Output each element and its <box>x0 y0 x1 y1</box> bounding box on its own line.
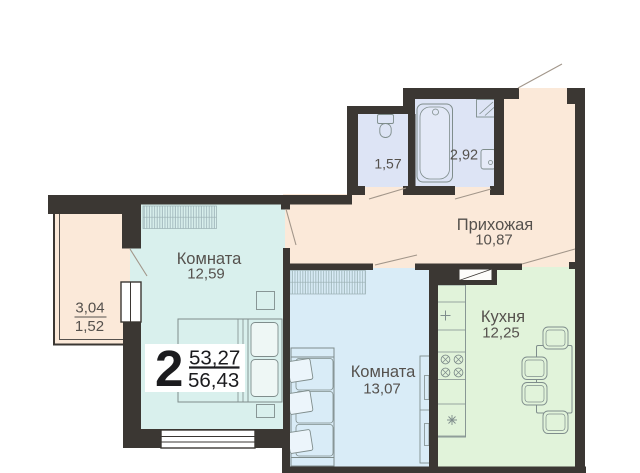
svg-text:12,59: 12,59 <box>187 266 225 283</box>
svg-text:Кухня: Кухня <box>481 308 525 326</box>
svg-text:1,57: 1,57 <box>374 155 401 171</box>
svg-text:10,87: 10,87 <box>475 231 513 248</box>
svg-text:1,52: 1,52 <box>75 318 104 335</box>
svg-text:2,92: 2,92 <box>450 148 478 164</box>
svg-text:13,07: 13,07 <box>363 381 401 398</box>
svg-text:53,27: 53,27 <box>189 347 240 370</box>
svg-text:12,25: 12,25 <box>482 325 520 342</box>
svg-text:56,43: 56,43 <box>188 369 239 392</box>
svg-text:Комната: Комната <box>351 363 416 381</box>
svg-text:2: 2 <box>155 340 183 397</box>
svg-text:3,04: 3,04 <box>75 300 104 317</box>
